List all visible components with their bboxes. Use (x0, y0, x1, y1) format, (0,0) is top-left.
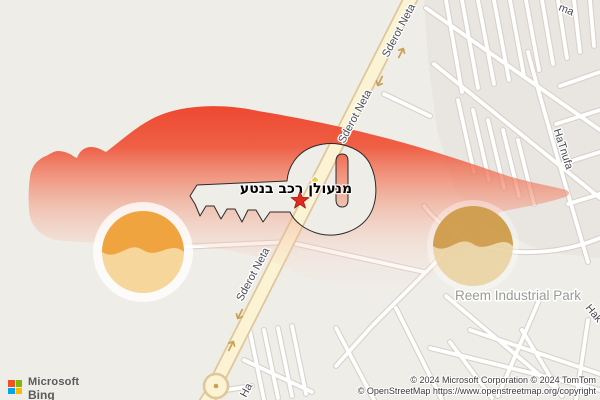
attribution-line1: © 2024 Microsoft Corporation © 2024 TomT… (358, 375, 596, 386)
map-attribution: © 2024 Microsoft Corporation © 2024 TomT… (358, 375, 596, 397)
poi-title-label: מנעולן רכב בנטע (240, 181, 352, 197)
area-label-reem-industrial-park: Reem Industrial Park (455, 288, 581, 303)
map-canvas[interactable]: Sderot Neta Sderot Neta Sderot Neta HaTn… (0, 0, 600, 400)
ms-square-blue (8, 388, 15, 395)
map-viewport[interactable]: Sderot Neta Sderot Neta Sderot Neta HaTn… (0, 0, 600, 400)
wheel-left (93, 202, 193, 302)
attribution-line2[interactable]: © OpenStreetMap https://www.openstreetma… (358, 386, 596, 397)
ms-square-yellow (16, 388, 23, 395)
ms-square-red (8, 380, 15, 387)
bing-wordmark: Microsoft Bing (28, 377, 79, 400)
roundabout-center-dot (214, 384, 219, 389)
bing-logo[interactable]: Microsoft Bing (8, 377, 79, 400)
wheel-right (427, 200, 519, 292)
microsoft-logo-icon (8, 380, 22, 394)
bing-label: Bing (28, 389, 79, 400)
ms-square-green (16, 380, 23, 387)
microsoft-label: Microsoft (28, 377, 79, 388)
